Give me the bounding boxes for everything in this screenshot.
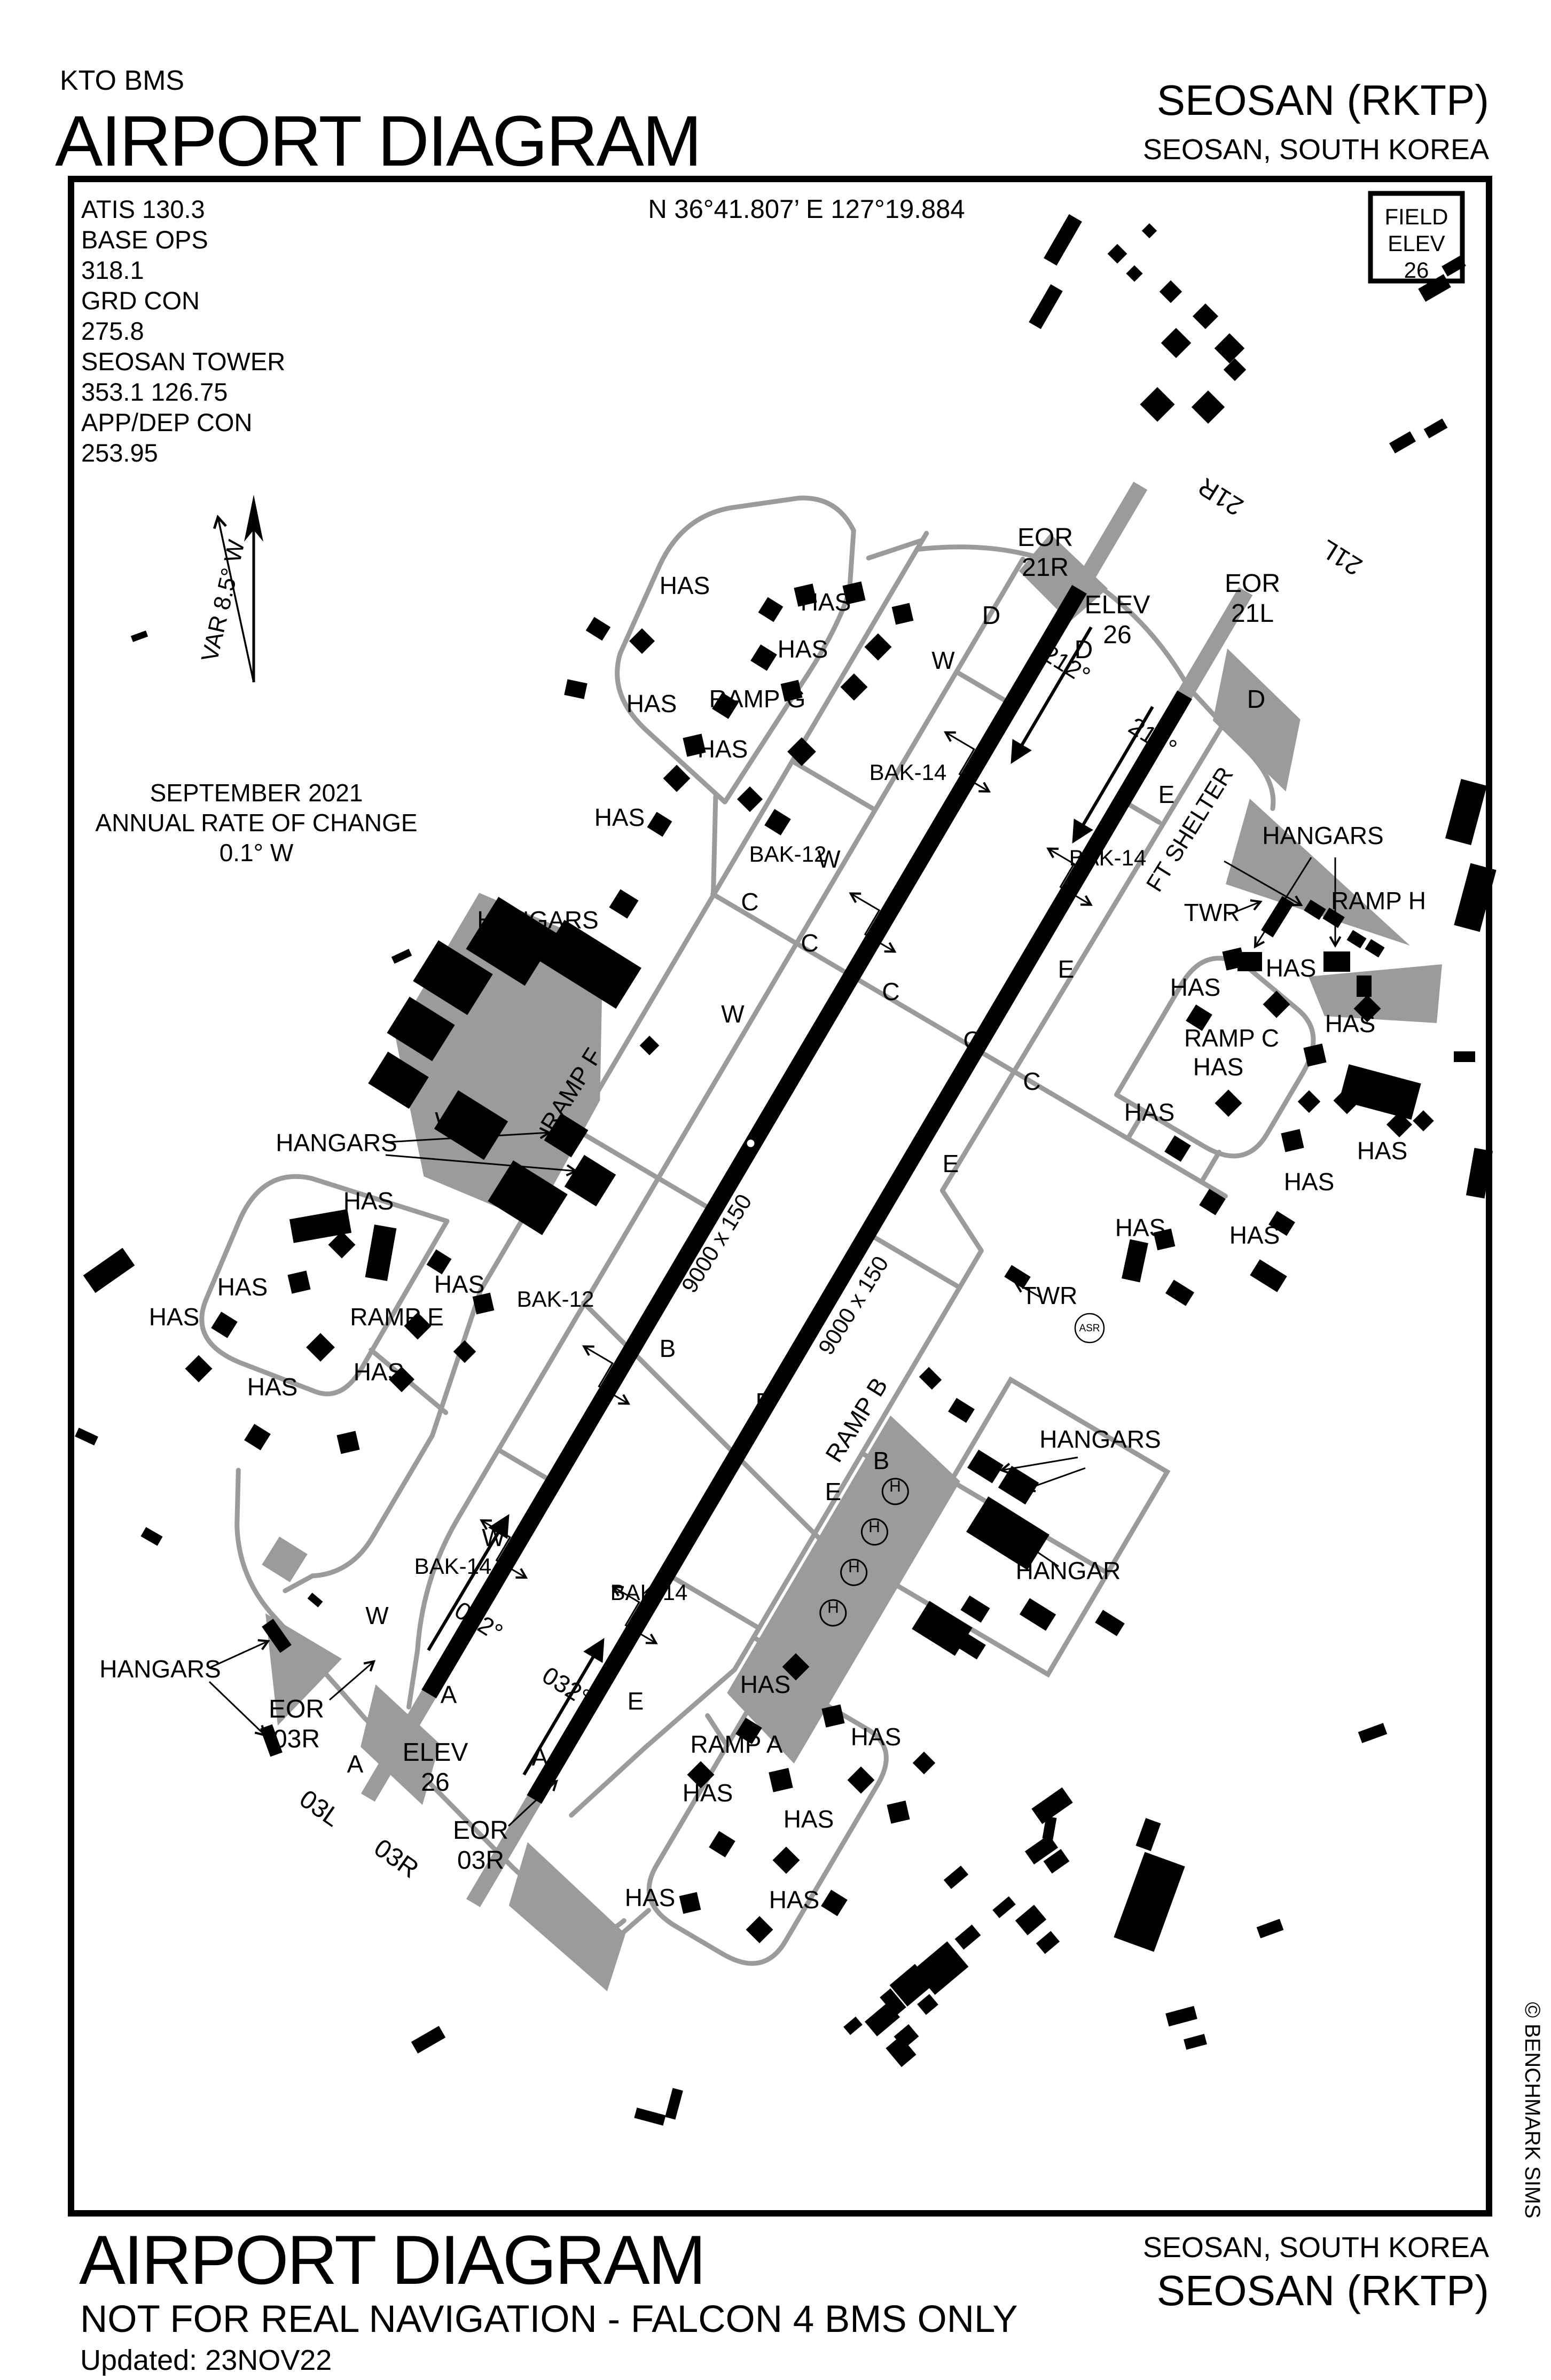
label-a: A [532, 1743, 549, 1771]
label-h: H [868, 1518, 880, 1536]
label-b: B [873, 1447, 890, 1474]
compass-note: ANNUAL RATE OF CHANGE [95, 809, 417, 837]
label-21l: 21L [1231, 599, 1274, 628]
comm-line: SEOSAN TOWER [81, 347, 285, 376]
position-coordinates: N 36°41.807’ E 127°19.884 [648, 195, 965, 224]
field-elev-value: 26 [1404, 257, 1429, 283]
label-c: C [801, 929, 818, 957]
building [1357, 976, 1372, 997]
footer-updated: Updated: 23NOV22 [80, 2344, 332, 2376]
label-asr: ASR [1079, 1323, 1100, 1334]
airport-diagram-page: KTO BMS AIRPORT DIAGRAM SEOSAN (RKTP) SE… [0, 0, 1551, 2380]
label-hangars: HANGARS [99, 1655, 221, 1683]
label-e: E [1058, 955, 1075, 983]
program-name: KTO BMS [60, 65, 184, 96]
label-d: D [1247, 685, 1266, 714]
footer-location: SEOSAN, SOUTH KOREA [1143, 2231, 1489, 2264]
label-eor: EOR [1017, 524, 1073, 552]
label-h: H [827, 1599, 839, 1617]
field-elev-line: ELEV [1388, 231, 1445, 256]
label-ramp-h: RAMP H [1331, 887, 1426, 915]
label-w: W [482, 1524, 505, 1551]
footer-title: AIRPORT DIAGRAM [79, 2221, 704, 2299]
comm-line: 275.8 [81, 317, 144, 345]
label-hangar: HANGAR [1016, 1557, 1121, 1585]
label-26: 26 [421, 1768, 449, 1797]
label-h: H [848, 1558, 860, 1576]
label-has: HAS [1266, 954, 1317, 982]
label-ramp-e: RAMP E [350, 1303, 444, 1331]
label-has: HAS [1170, 973, 1221, 1001]
label-has: HAS [626, 690, 677, 717]
label-has: HAS [683, 1779, 733, 1807]
label-has: HAS [660, 572, 710, 599]
label-a: A [347, 1750, 364, 1778]
label-has: HAS [784, 1805, 834, 1833]
label-has: HAS [1193, 1053, 1244, 1081]
label-eor: EOR [1225, 569, 1280, 598]
label-c: C [963, 1026, 981, 1054]
label-e: E [628, 1687, 644, 1715]
label-b: B [660, 1335, 676, 1362]
label-has: HAS [698, 735, 748, 763]
label-w: W [435, 1107, 458, 1135]
comm-line: 253.95 [81, 439, 158, 467]
label-hangars: HANGARS [276, 1129, 397, 1157]
compass-note: 0.1° W [220, 839, 294, 867]
label-has: HAS [149, 1303, 200, 1331]
label-eor: EOR [453, 1816, 508, 1845]
label-hangars: HANGARS [477, 906, 598, 934]
label-bak-12: BAK-12 [517, 1286, 594, 1312]
page-title: AIRPORT DIAGRAM [55, 102, 700, 181]
comm-line: 318.1 [81, 256, 144, 284]
label-03r: 03R [457, 1846, 504, 1875]
label-21r: 21R [1022, 553, 1069, 582]
label-has: HAS [769, 1886, 820, 1914]
label-bak-14: BAK-14 [1069, 845, 1147, 870]
label-has: HAS [217, 1273, 268, 1301]
label-b: B [756, 1388, 772, 1416]
label-has: HAS [594, 803, 645, 831]
label-d: D [982, 602, 1001, 630]
label-has: HAS [1229, 1221, 1280, 1249]
label-has: HAS [1124, 1098, 1175, 1126]
label-has: HAS [740, 1671, 791, 1698]
label-has: HAS [343, 1187, 394, 1215]
label-bak-14: BAK-14 [869, 760, 947, 785]
label-e: E [825, 1478, 842, 1505]
label-has: HAS [1284, 1168, 1335, 1196]
footer-disclaimer: NOT FOR REAL NAVIGATION - FALCON 4 BMS O… [80, 2298, 1018, 2340]
label-twr: TWR [1184, 899, 1240, 926]
label-has: HAS [434, 1270, 485, 1298]
label-elev: ELEV [403, 1738, 468, 1767]
comm-line: ATIS 130.3 [81, 195, 205, 223]
label-03r: 03R [273, 1725, 320, 1753]
label-c: C [1023, 1067, 1040, 1095]
label-hangars: HANGARS [1039, 1425, 1161, 1453]
label-eor: EOR [269, 1695, 324, 1723]
footer-airport: SEOSAN (RKTP) [1157, 2267, 1489, 2314]
label-ramp-c: RAMP C [1184, 1024, 1279, 1052]
building [1454, 1051, 1475, 1062]
label-bak-14: BAK-14 [414, 1554, 492, 1579]
label-ramp-g: RAMP G [709, 685, 806, 713]
label-w: W [931, 646, 955, 674]
label-has: HAS [778, 635, 828, 663]
airport-location: SEOSAN, SOUTH KOREA [1143, 134, 1489, 166]
label-e: E [943, 1150, 959, 1177]
label-has: HAS [1115, 1214, 1166, 1242]
label-has: HAS [247, 1373, 298, 1401]
label-hangars: HANGARS [1262, 822, 1383, 849]
field-elev-line: FIELD [1384, 204, 1448, 229]
label-has: HAS [1325, 1010, 1376, 1037]
comm-line: GRD CON [81, 286, 200, 315]
label-has: HAS [851, 1723, 902, 1751]
label-has: HAS [1357, 1137, 1408, 1165]
label-h: H [889, 1478, 901, 1495]
label-twr: TWR [1022, 1282, 1078, 1309]
copyright-notice: © BENCHMARK SIMS [1521, 2002, 1544, 2218]
label-26: 26 [1103, 621, 1131, 649]
label-c: C [882, 978, 899, 1005]
compass-note: SEPTEMBER 2021 [150, 779, 363, 807]
label-c: C [741, 888, 758, 916]
building [1323, 951, 1350, 972]
label-has: HAS [625, 1884, 676, 1911]
label-e: E [1158, 781, 1175, 808]
label-has: HAS [801, 588, 851, 616]
comm-line: 353.1 126.75 [81, 378, 228, 406]
airport-name: SEOSAN (RKTP) [1157, 76, 1489, 124]
label-ramp-a: RAMP A [691, 1730, 783, 1758]
comm-line: BASE OPS [81, 225, 208, 254]
label-a: A [441, 1681, 457, 1708]
comm-line: APP/DEP CON [81, 408, 252, 436]
label-w: W [721, 1000, 745, 1028]
label-bak-12: BAK-12 [749, 841, 827, 867]
label-has: HAS [354, 1358, 404, 1386]
label-w: W [365, 1602, 389, 1629]
label-elev: ELEV [1085, 591, 1150, 619]
label-bak-14: BAK-14 [610, 1580, 688, 1605]
